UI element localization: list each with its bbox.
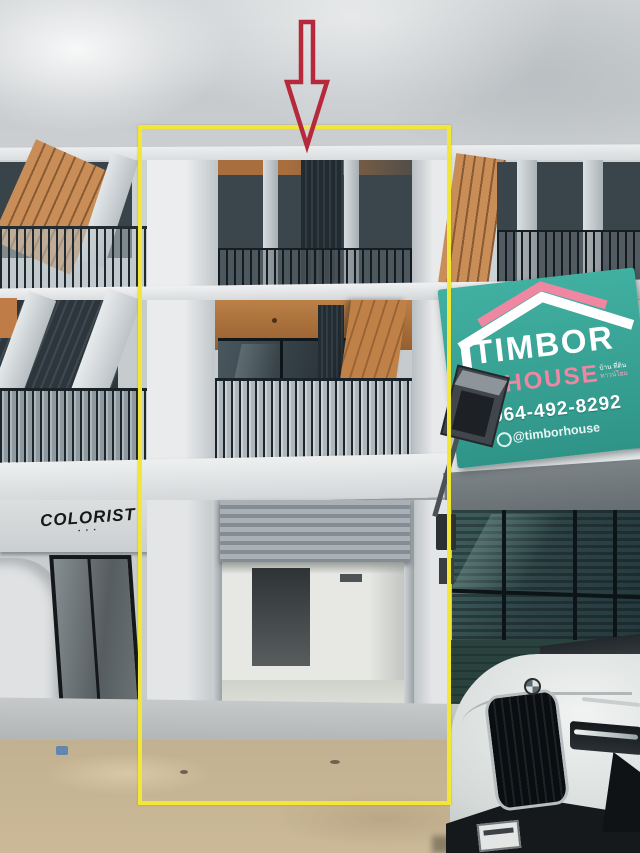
down-arrow-icon — [277, 18, 337, 158]
car-badge — [524, 678, 541, 695]
blue-debris — [56, 746, 68, 755]
floodlight-lens — [452, 390, 495, 437]
photo-canvas: COLORIST • • • — [0, 0, 640, 853]
white-suv — [432, 640, 640, 853]
license-plate — [477, 820, 522, 852]
license-plate-text — [483, 827, 513, 835]
car-grille — [483, 688, 571, 812]
sign-thai-tagline: บ้าน ที่ดิน ทาวน์โฮม — [599, 362, 628, 381]
balcony-railing — [0, 388, 147, 465]
highlight-rectangle — [138, 125, 451, 805]
balcony-railing — [0, 226, 147, 289]
